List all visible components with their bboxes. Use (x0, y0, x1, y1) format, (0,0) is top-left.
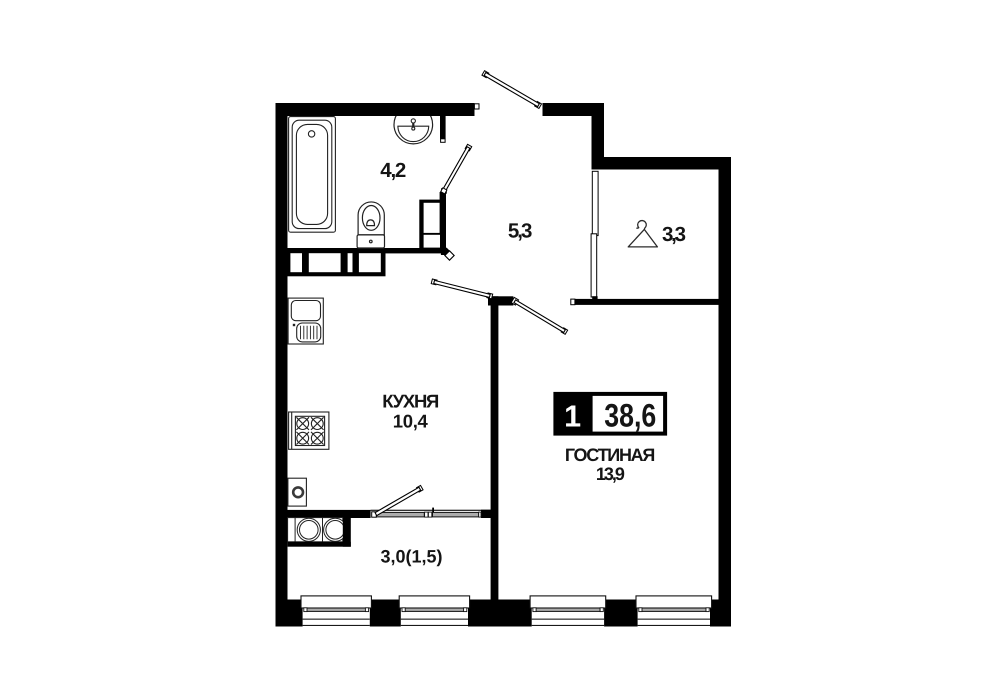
svg-text:10,4: 10,4 (393, 411, 429, 432)
svg-text:38,6: 38,6 (604, 398, 656, 434)
svg-text:ГОСТИНАЯ: ГОСТИНАЯ (565, 445, 656, 465)
svg-text:1: 1 (564, 400, 581, 434)
svg-text:4,2: 4,2 (380, 159, 406, 182)
svg-text:3,3: 3,3 (662, 223, 686, 246)
svg-text:КУХНЯ: КУХНЯ (382, 390, 439, 411)
svg-text:13,9: 13,9 (596, 464, 625, 484)
svg-text:5,3: 5,3 (508, 220, 533, 243)
svg-text:3,0(1,5): 3,0(1,5) (381, 546, 443, 566)
